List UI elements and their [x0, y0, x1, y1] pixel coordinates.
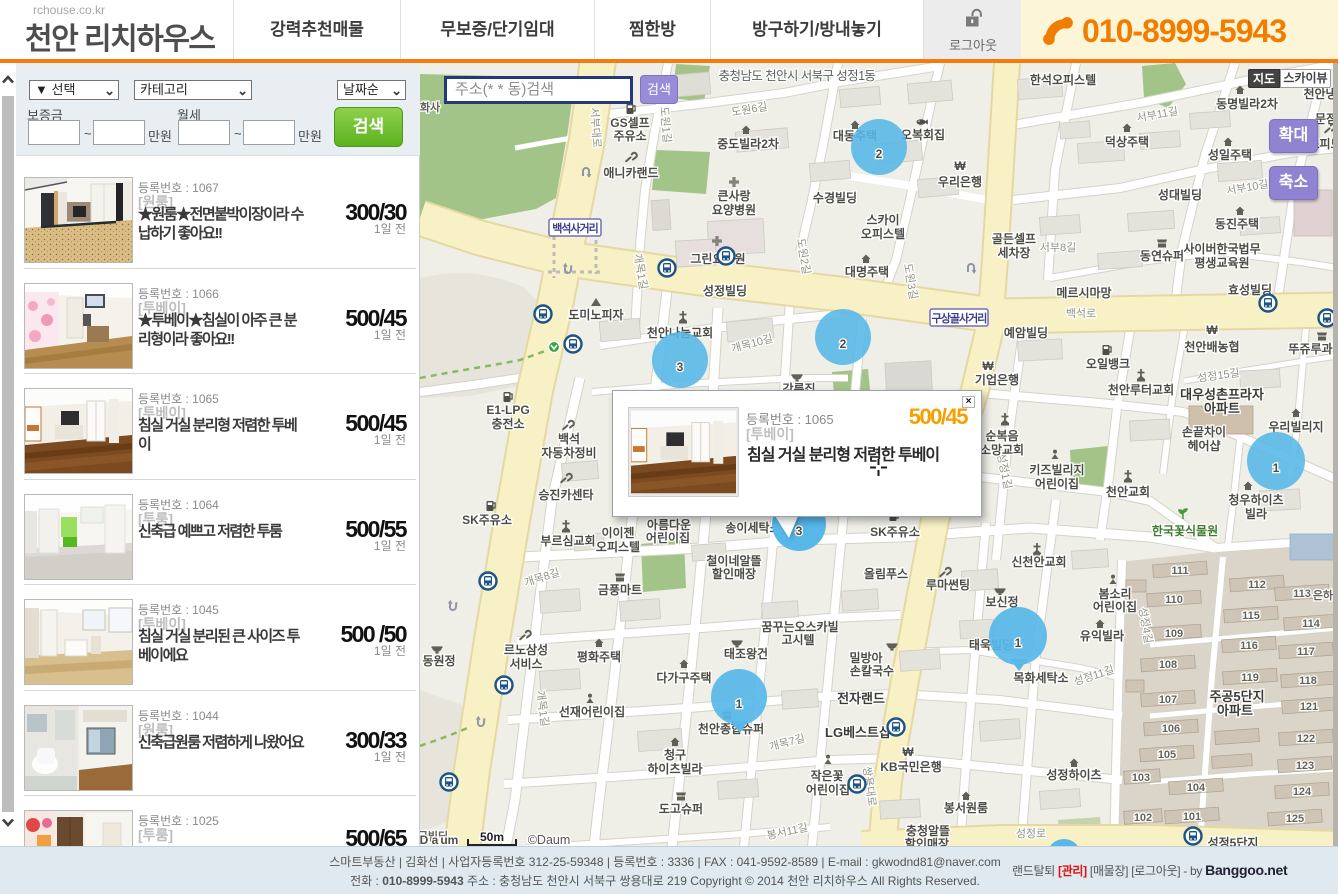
svg-text:선재어린이집: 선재어린이집 [559, 704, 625, 719]
svg-text:E1-LPG: E1-LPG [486, 403, 529, 417]
svg-text:u: u [440, 833, 447, 847]
svg-text:1: 1 [1273, 461, 1280, 475]
svg-text:큰사랑: 큰사랑 [717, 188, 750, 203]
svg-text:하이츠빌라: 하이츠빌라 [647, 761, 702, 776]
svg-text:어린이집: 어린이집 [646, 530, 690, 545]
svg-text:©Daum: ©Daum [528, 833, 571, 847]
svg-text:보신정: 보신정 [985, 594, 1018, 609]
svg-text:천안배농협: 천안배농협 [1184, 339, 1239, 354]
svg-text:a: a [432, 833, 439, 847]
svg-text:m: m [448, 833, 459, 847]
svg-text:메르시마망: 메르시마망 [1056, 285, 1111, 300]
svg-text:백석로: 백석로 [1066, 307, 1096, 320]
svg-text:천안냉: 천안냉 [1303, 86, 1336, 101]
svg-text:123: 123 [1296, 760, 1314, 772]
svg-text:고시텔: 고시텔 [781, 633, 814, 647]
svg-text:성정로: 성정로 [1016, 827, 1046, 840]
svg-text:2: 2 [840, 337, 847, 351]
svg-text:중도빌라2차: 중도빌라2차 [717, 136, 779, 151]
svg-text:114: 114 [1302, 618, 1321, 630]
svg-text:충청남도 천안시 서북구 성정1동: 충청남도 천안시 서북구 성정1동 [719, 68, 876, 83]
svg-text:서비스: 서비스 [509, 656, 542, 671]
svg-text:헤어샵: 헤어샵 [1187, 438, 1220, 453]
svg-text:104: 104 [1187, 782, 1206, 794]
svg-text:소망교회: 소망교회 [980, 442, 1024, 457]
svg-text:109: 109 [1165, 628, 1183, 640]
svg-text:102: 102 [1134, 812, 1152, 824]
svg-text:평화주택: 평화주택 [577, 649, 621, 664]
svg-text:도미노피자: 도미노피자 [568, 307, 623, 322]
svg-text:올림푸스: 올림푸스 [864, 567, 908, 581]
svg-text:빌라: 빌라 [1245, 506, 1267, 521]
svg-text:1: 1 [736, 697, 743, 711]
svg-text:철이네알뜰: 철이네알뜰 [706, 553, 761, 568]
svg-text:SK주유소: SK주유소 [462, 513, 512, 527]
svg-text:서부8길: 서부8길 [1040, 241, 1076, 254]
svg-text:112: 112 [1248, 579, 1266, 591]
svg-text:성정빌딩: 성정빌딩 [703, 283, 747, 298]
svg-text:118: 118 [1299, 675, 1317, 687]
svg-text:SK주유소: SK주유소 [870, 525, 920, 539]
svg-text:아파트: 아파트 [1204, 401, 1240, 416]
svg-text:122: 122 [1297, 733, 1315, 745]
svg-text:아파트: 아파트 [1217, 703, 1253, 718]
svg-text:천안교회: 천안교회 [1106, 484, 1150, 499]
svg-text:부르심교회: 부르심교회 [540, 533, 595, 548]
svg-text:한국꽃식물원: 한국꽃식물원 [1152, 523, 1218, 538]
svg-text:세차장: 세차장 [997, 245, 1030, 260]
svg-text:111: 111 [1171, 565, 1188, 577]
svg-text:LG베스트샵: LG베스트샵 [825, 725, 891, 740]
svg-text:꿈꾸는오스카빌: 꿈꾸는오스카빌 [761, 619, 838, 634]
svg-text:유익빌라: 유익빌라 [1080, 628, 1124, 643]
svg-text:충청알뜰: 충청알뜰 [906, 823, 950, 838]
svg-text:봄소리: 봄소리 [1098, 586, 1131, 601]
svg-text:103: 103 [1132, 772, 1150, 784]
svg-text:밀방아: 밀방아 [849, 650, 882, 665]
svg-text:오복회집: 오복회집 [901, 127, 945, 142]
svg-text:동진주택: 동진주택 [1215, 216, 1259, 231]
svg-text:기업은행: 기업은행 [975, 372, 1019, 387]
svg-text:어린이집: 어린이집 [1035, 476, 1079, 491]
svg-text:승진카센타: 승진카센타 [538, 487, 593, 502]
svg-text:3: 3 [677, 360, 684, 374]
svg-text:뚜쥬루과자: 뚜쥬루과자 [1288, 341, 1338, 356]
svg-text:덕상주택: 덕상주택 [1105, 134, 1149, 149]
svg-text:동명빌라2차: 동명빌라2차 [1216, 96, 1278, 111]
svg-text:사이버한국법무: 사이버한국법무 [1183, 241, 1260, 256]
svg-text:117: 117 [1297, 646, 1315, 658]
svg-text:태조왕건: 태조왕건 [724, 646, 768, 661]
svg-text:손끝차이: 손끝차이 [1182, 424, 1226, 439]
svg-text:우리은행: 우리은행 [938, 174, 982, 189]
svg-text:125: 125 [1286, 813, 1304, 825]
svg-text:자동차정비: 자동차정비 [541, 445, 596, 460]
svg-text:화사: 화사 [420, 100, 441, 114]
svg-text:주유소: 주유소 [613, 129, 646, 143]
svg-text:다가구주택: 다가구주택 [656, 670, 711, 685]
svg-text:어린이집: 어린이집 [1093, 599, 1137, 614]
svg-text:골든셀프: 골든셀프 [992, 231, 1036, 246]
svg-text:순복음: 순복음 [985, 428, 1018, 443]
svg-text:목화세탁소: 목화세탁소 [1013, 670, 1068, 685]
svg-text:작은꽃: 작은꽃 [810, 768, 843, 783]
svg-text:충전소: 충전소 [491, 416, 524, 431]
svg-text:요양병원: 요양병원 [712, 202, 756, 217]
svg-text:동연슈퍼: 동연슈퍼 [1140, 248, 1184, 263]
svg-text:애니카랜드: 애니카랜드 [603, 165, 658, 180]
svg-text:평생교육원: 평생교육원 [1194, 255, 1249, 270]
svg-text:봉서원룸: 봉서원룸 [944, 800, 988, 815]
svg-text:오피스텔: 오피스텔 [596, 539, 640, 554]
svg-text:115: 115 [1242, 610, 1260, 622]
svg-text:오피스텔: 오피스텔 [861, 226, 905, 241]
svg-text:116: 116 [1240, 640, 1258, 652]
svg-text:루마썬팅: 루마썬팅 [926, 577, 970, 592]
svg-text:이이젠: 이이젠 [601, 525, 634, 540]
svg-text:GS셀프: GS셀프 [610, 115, 649, 130]
svg-text:어린이집: 어린이집 [806, 782, 850, 797]
svg-text:성일주택: 성일주택 [1208, 147, 1252, 162]
svg-text:한석오피스텔: 한석오피스텔 [1030, 72, 1096, 87]
svg-text:주공5단지: 주공5단지 [1209, 689, 1264, 704]
svg-text:108: 108 [1159, 659, 1177, 671]
svg-text:113: 113 [1293, 588, 1311, 600]
svg-text:1: 1 [1015, 636, 1022, 650]
svg-text:124: 124 [1293, 786, 1312, 798]
svg-text:오일뱅크: 오일뱅크 [1086, 356, 1130, 371]
svg-text:110: 110 [1165, 594, 1183, 606]
svg-text:D: D [420, 833, 429, 847]
svg-text:키즈빌리지: 키즈빌리지 [1029, 462, 1084, 477]
svg-text:성대빌딩: 성대빌딩 [1158, 187, 1202, 202]
svg-text:성정하이츠: 성정하이츠 [1046, 767, 1101, 782]
svg-text:할인매장: 할인매장 [712, 566, 756, 581]
svg-text:50m: 50m [480, 830, 504, 844]
svg-text:전자랜드: 전자랜드 [837, 691, 885, 706]
svg-text:동원정: 동원정 [422, 653, 455, 668]
svg-text:청우하이츠: 청우하이츠 [1228, 492, 1283, 507]
svg-text:대명주택: 대명주택 [845, 264, 889, 279]
svg-text:121: 121 [1300, 701, 1318, 713]
svg-text:예암빌딩: 예암빌딩 [1004, 325, 1048, 340]
svg-text:구상골사거리: 구상골사거리 [932, 311, 987, 325]
svg-text:KB국민은행: KB국민은행 [880, 759, 942, 774]
svg-text:101: 101 [1183, 811, 1201, 823]
svg-text:손칼국수: 손칼국수 [850, 664, 894, 678]
svg-text:107: 107 [1159, 694, 1177, 706]
svg-text:백석사거리: 백석사거리 [552, 221, 598, 235]
svg-text:금풍마트: 금풍마트 [598, 582, 642, 597]
svg-text:청구: 청구 [664, 747, 686, 762]
svg-text:119: 119 [1241, 672, 1259, 684]
svg-text:신천안교회: 신천안교회 [1011, 554, 1066, 569]
svg-text:2: 2 [876, 147, 883, 161]
svg-text:106: 106 [1162, 723, 1180, 735]
svg-text:르노삼성: 르노삼성 [504, 642, 548, 657]
svg-text:아름다운: 아름다운 [647, 517, 691, 532]
svg-text:수경빌딩: 수경빌딩 [813, 190, 857, 205]
svg-text:스카이: 스카이 [866, 212, 899, 227]
svg-text:105: 105 [1158, 749, 1176, 761]
svg-text:천안루터교회: 천안루터교회 [1108, 382, 1174, 397]
svg-text:대우성촌프라자: 대우성촌프라자 [1180, 387, 1264, 402]
svg-text:도고슈퍼: 도고슈퍼 [659, 801, 703, 816]
svg-text:우리빌리지: 우리빌리지 [1268, 419, 1323, 434]
svg-text:백석: 백석 [558, 431, 580, 446]
